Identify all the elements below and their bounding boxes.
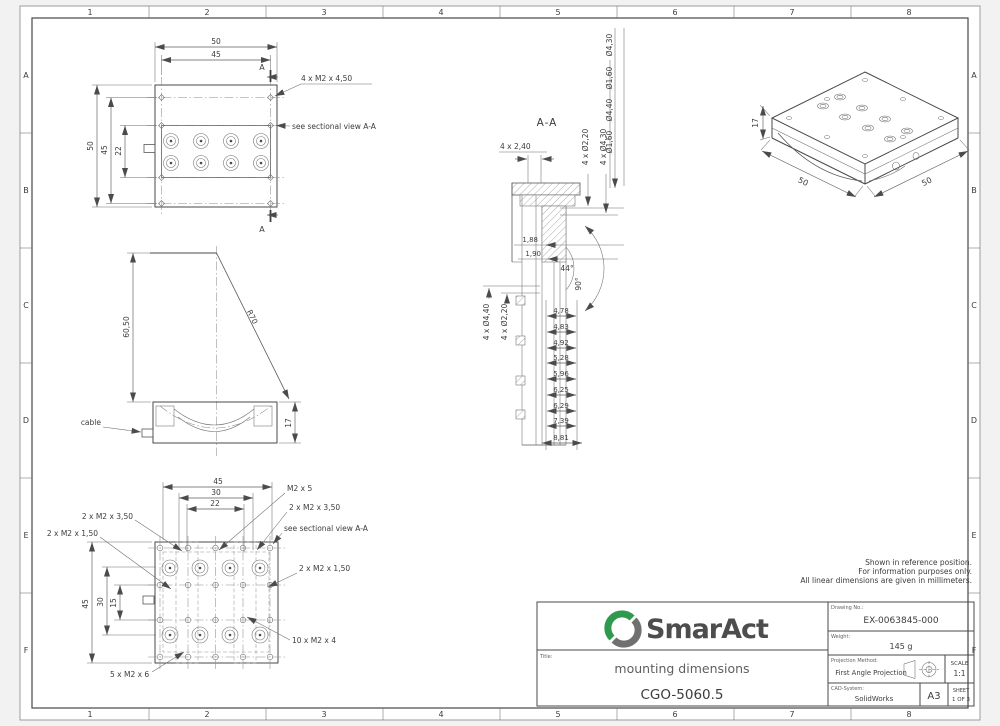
scale-value: 1:1 <box>953 669 965 678</box>
dim-label: 30 <box>211 488 221 497</box>
callout: see sectional view A-A <box>284 524 369 533</box>
dim-label: 4,92 <box>553 339 569 347</box>
grid-col-label: 5 <box>555 710 560 719</box>
grid-row-label: B <box>23 186 29 195</box>
dia-label: Ø4,40 <box>605 98 614 121</box>
dia-callout: 4 x Ø2,20 <box>500 303 509 340</box>
dim-label: 8,81 <box>553 434 569 442</box>
drawing-number: EX-0063845-000 <box>863 616 938 626</box>
dim-label: 1,88 <box>522 236 538 244</box>
dim-label: 30 <box>96 597 105 607</box>
grid-row-label: E <box>971 531 976 540</box>
dim-label: 6,25 <box>553 386 569 394</box>
cad-system: SolidWorks <box>855 695 894 703</box>
dim-label: 60,50 <box>122 316 131 338</box>
dia-callout: 4 x Ø2,20 <box>581 128 590 165</box>
dim-label: 17 <box>284 418 293 428</box>
grid-row-label: B <box>971 186 977 195</box>
grid-col-label: 2 <box>204 710 209 719</box>
field-label: Title: <box>539 654 553 660</box>
section-marker-label: A <box>259 63 265 72</box>
dim-label: 15 <box>109 598 118 608</box>
scale-label: SCALE <box>951 661 969 667</box>
dim-label: 6,29 <box>553 402 569 410</box>
grid-col-label: 1 <box>87 710 92 719</box>
callout: 10 x M2 x 4 <box>292 636 336 645</box>
dim-label: 4,78 <box>553 307 569 315</box>
grid-row-label: D <box>971 416 977 425</box>
dim-label: 22 <box>210 499 220 508</box>
dim-label: 50 <box>211 37 221 46</box>
dim-label: 45 <box>81 599 90 609</box>
drawing-sheet: 1 2 3 4 5 6 7 8 1 2 3 4 5 6 7 8 A B C D … <box>0 0 1000 726</box>
callout: 2 x M2 x 1,50 <box>299 564 350 573</box>
grid-row-label: A <box>23 71 29 80</box>
dim-label: 7,39 <box>553 417 569 425</box>
dim-label: 45 <box>213 477 223 486</box>
note-line: Shown in reference position. <box>865 558 972 567</box>
angle-label: 90° <box>574 277 583 291</box>
paper-size: A3 <box>927 691 940 702</box>
callout: 4 x 2,40 <box>500 142 531 151</box>
section-marker-label: A <box>259 225 265 234</box>
dim-label: 17 <box>751 118 760 128</box>
technical-drawing: 1 2 3 4 5 6 7 8 1 2 3 4 5 6 7 8 A B C D … <box>0 0 1000 726</box>
frame: 1 2 3 4 5 6 7 8 1 2 3 4 5 6 7 8 A B C D … <box>20 6 980 720</box>
projection-method: First Angle Projection <box>835 669 907 677</box>
grid-col-label: 6 <box>672 8 677 17</box>
callout-section: see sectional view A-A <box>292 122 377 131</box>
sheet-label: SHEET <box>953 688 970 694</box>
dia-label: Ø4,30 <box>605 33 614 56</box>
dim-label: 5,28 <box>553 354 569 362</box>
grid-col-label: 7 <box>789 8 794 17</box>
section-title: A-A <box>537 117 558 129</box>
grid-col-label: 5 <box>555 8 560 17</box>
callout: 5 x M2 x 6 <box>110 670 149 679</box>
dim-label: 1,90 <box>525 250 541 258</box>
callout: 2 x M2 x 3,50 <box>289 503 340 512</box>
grid-row-label: E <box>23 531 28 540</box>
field-label: Drawing No.: <box>831 605 864 611</box>
grid-col-label: 3 <box>321 8 326 17</box>
part-number: CGO-5060.5 <box>641 687 724 703</box>
note-line: For information purposes only. <box>858 567 972 576</box>
callout: 2 x M2 x 3,50 <box>82 512 133 521</box>
grid-col-label: 2 <box>204 8 209 17</box>
sheet-value: 1 OF 3 <box>952 697 970 703</box>
grid-col-label: 7 <box>789 710 794 719</box>
grid-row-label: D <box>23 416 29 425</box>
callout-screws: 4 x M2 x 4,50 <box>301 74 352 83</box>
drawing-subject: mounting dimensions <box>614 661 749 676</box>
grid-col-label: 1 <box>87 8 92 17</box>
note-line: All linear dimensions are given in milli… <box>800 576 972 585</box>
dim-label: 45 <box>211 50 221 59</box>
dia-callout: 4 x Ø4,40 <box>482 303 491 340</box>
grid-row-label: F <box>24 646 29 655</box>
field-label: Projection Method: <box>831 658 878 664</box>
grid-row-label: C <box>971 301 977 310</box>
brand-name: SmarAct <box>646 614 769 645</box>
grid-row-label: A <box>971 71 977 80</box>
grid-col-label: 8 <box>906 8 911 17</box>
angle-label: 44° <box>560 264 574 273</box>
dim-label: 50 <box>86 141 95 151</box>
callout: 2 x M2 x 1,50 <box>47 529 98 538</box>
callout: M2 x 5 <box>287 484 312 493</box>
grid-col-label: 8 <box>906 710 911 719</box>
grid-col-label: 4 <box>438 710 443 719</box>
grid-row-label: C <box>23 301 29 310</box>
weight-value: 145 g <box>890 642 913 651</box>
cable-label: cable <box>81 418 102 427</box>
grid-col-label: 3 <box>321 710 326 719</box>
grid-col-label: 6 <box>672 710 677 719</box>
dim-label: 22 <box>114 146 123 156</box>
field-label: CAD-System: <box>831 686 864 692</box>
dim-label: 5,96 <box>553 370 569 378</box>
dim-label: 4,83 <box>553 323 569 331</box>
grid-col-label: 4 <box>438 8 443 17</box>
field-label: Weight: <box>831 634 850 640</box>
dim-label: 45 <box>100 145 109 155</box>
dia-label: Ø1,60 <box>605 66 614 89</box>
dia-callout: 4 x Ø4,30 <box>599 128 608 165</box>
